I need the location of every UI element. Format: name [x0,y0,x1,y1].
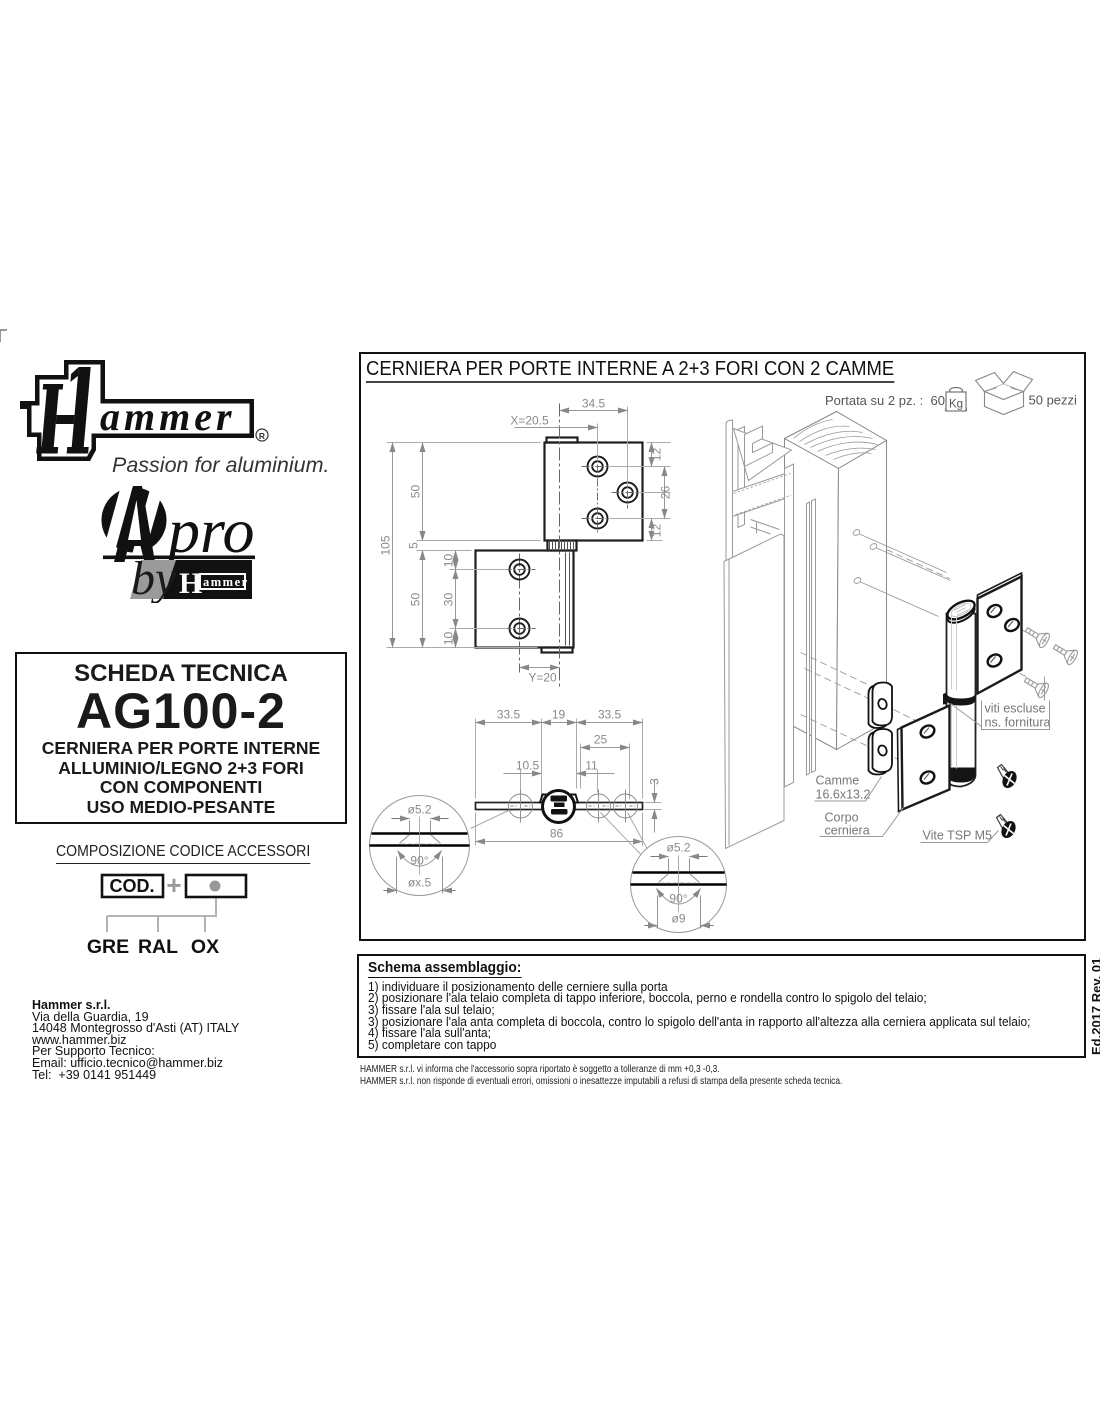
svg-text:86: 86 [549,826,563,840]
svg-text:viti escluse: viti escluse [984,701,1045,715]
svg-text:26: 26 [658,485,672,499]
svg-text:Vite TSP M5: Vite TSP M5 [922,828,992,842]
svg-text:12: 12 [649,447,663,461]
svg-text:10: 10 [441,631,455,645]
svg-text:Corpo: Corpo [824,810,858,824]
svg-text:30: 30 [441,592,455,606]
svg-text:R: R [259,431,265,441]
svg-text:ø5.2: ø5.2 [407,802,431,816]
svg-text:Y=20: Y=20 [528,670,557,684]
svg-text:OX: OX [191,936,219,958]
svg-text:10: 10 [441,553,455,567]
svg-text:ø9: ø9 [671,911,685,925]
svg-text:34.5: 34.5 [581,396,605,410]
svg-text:+: + [166,870,181,900]
svg-text:50 pezzi: 50 pezzi [1028,392,1077,407]
svg-text:5: 5 [406,541,420,548]
svg-text:GRE: GRE [87,936,129,958]
svg-text:10.5: 10.5 [515,758,539,772]
svg-text:50: 50 [408,484,422,498]
svg-text:Camme: Camme [815,773,859,787]
svg-text:cerniera: cerniera [824,823,869,837]
svg-text:33.5: 33.5 [496,707,520,721]
svg-text:COD.: COD. [110,876,155,896]
svg-text:19: 19 [551,707,565,721]
svg-text:105: 105 [378,535,392,555]
svg-text:X=20.5: X=20.5 [510,413,549,427]
svg-text:H: H [179,567,202,600]
svg-text:12: 12 [649,523,663,537]
svg-text:ammer: ammer [100,394,236,439]
svg-text:by: by [131,552,177,603]
svg-text:3: 3 [647,777,661,784]
svg-text:16.6x13.2: 16.6x13.2 [815,787,870,801]
svg-text:11: 11 [585,758,598,772]
svg-text:ammer: ammer [203,575,249,589]
svg-text:Kg: Kg [948,398,962,410]
svg-text:33.5: 33.5 [597,707,621,721]
svg-text:øx.5: øx.5 [407,875,431,889]
svg-text:ø5.2: ø5.2 [666,840,690,854]
svg-text:25: 25 [593,732,607,746]
svg-text:90°: 90° [410,853,428,867]
svg-text:90°: 90° [669,891,687,905]
svg-text:pro: pro [164,495,255,566]
svg-text:50: 50 [408,592,422,606]
svg-text:RAL: RAL [138,936,178,958]
svg-text:ns. fornitura: ns. fornitura [984,715,1050,729]
